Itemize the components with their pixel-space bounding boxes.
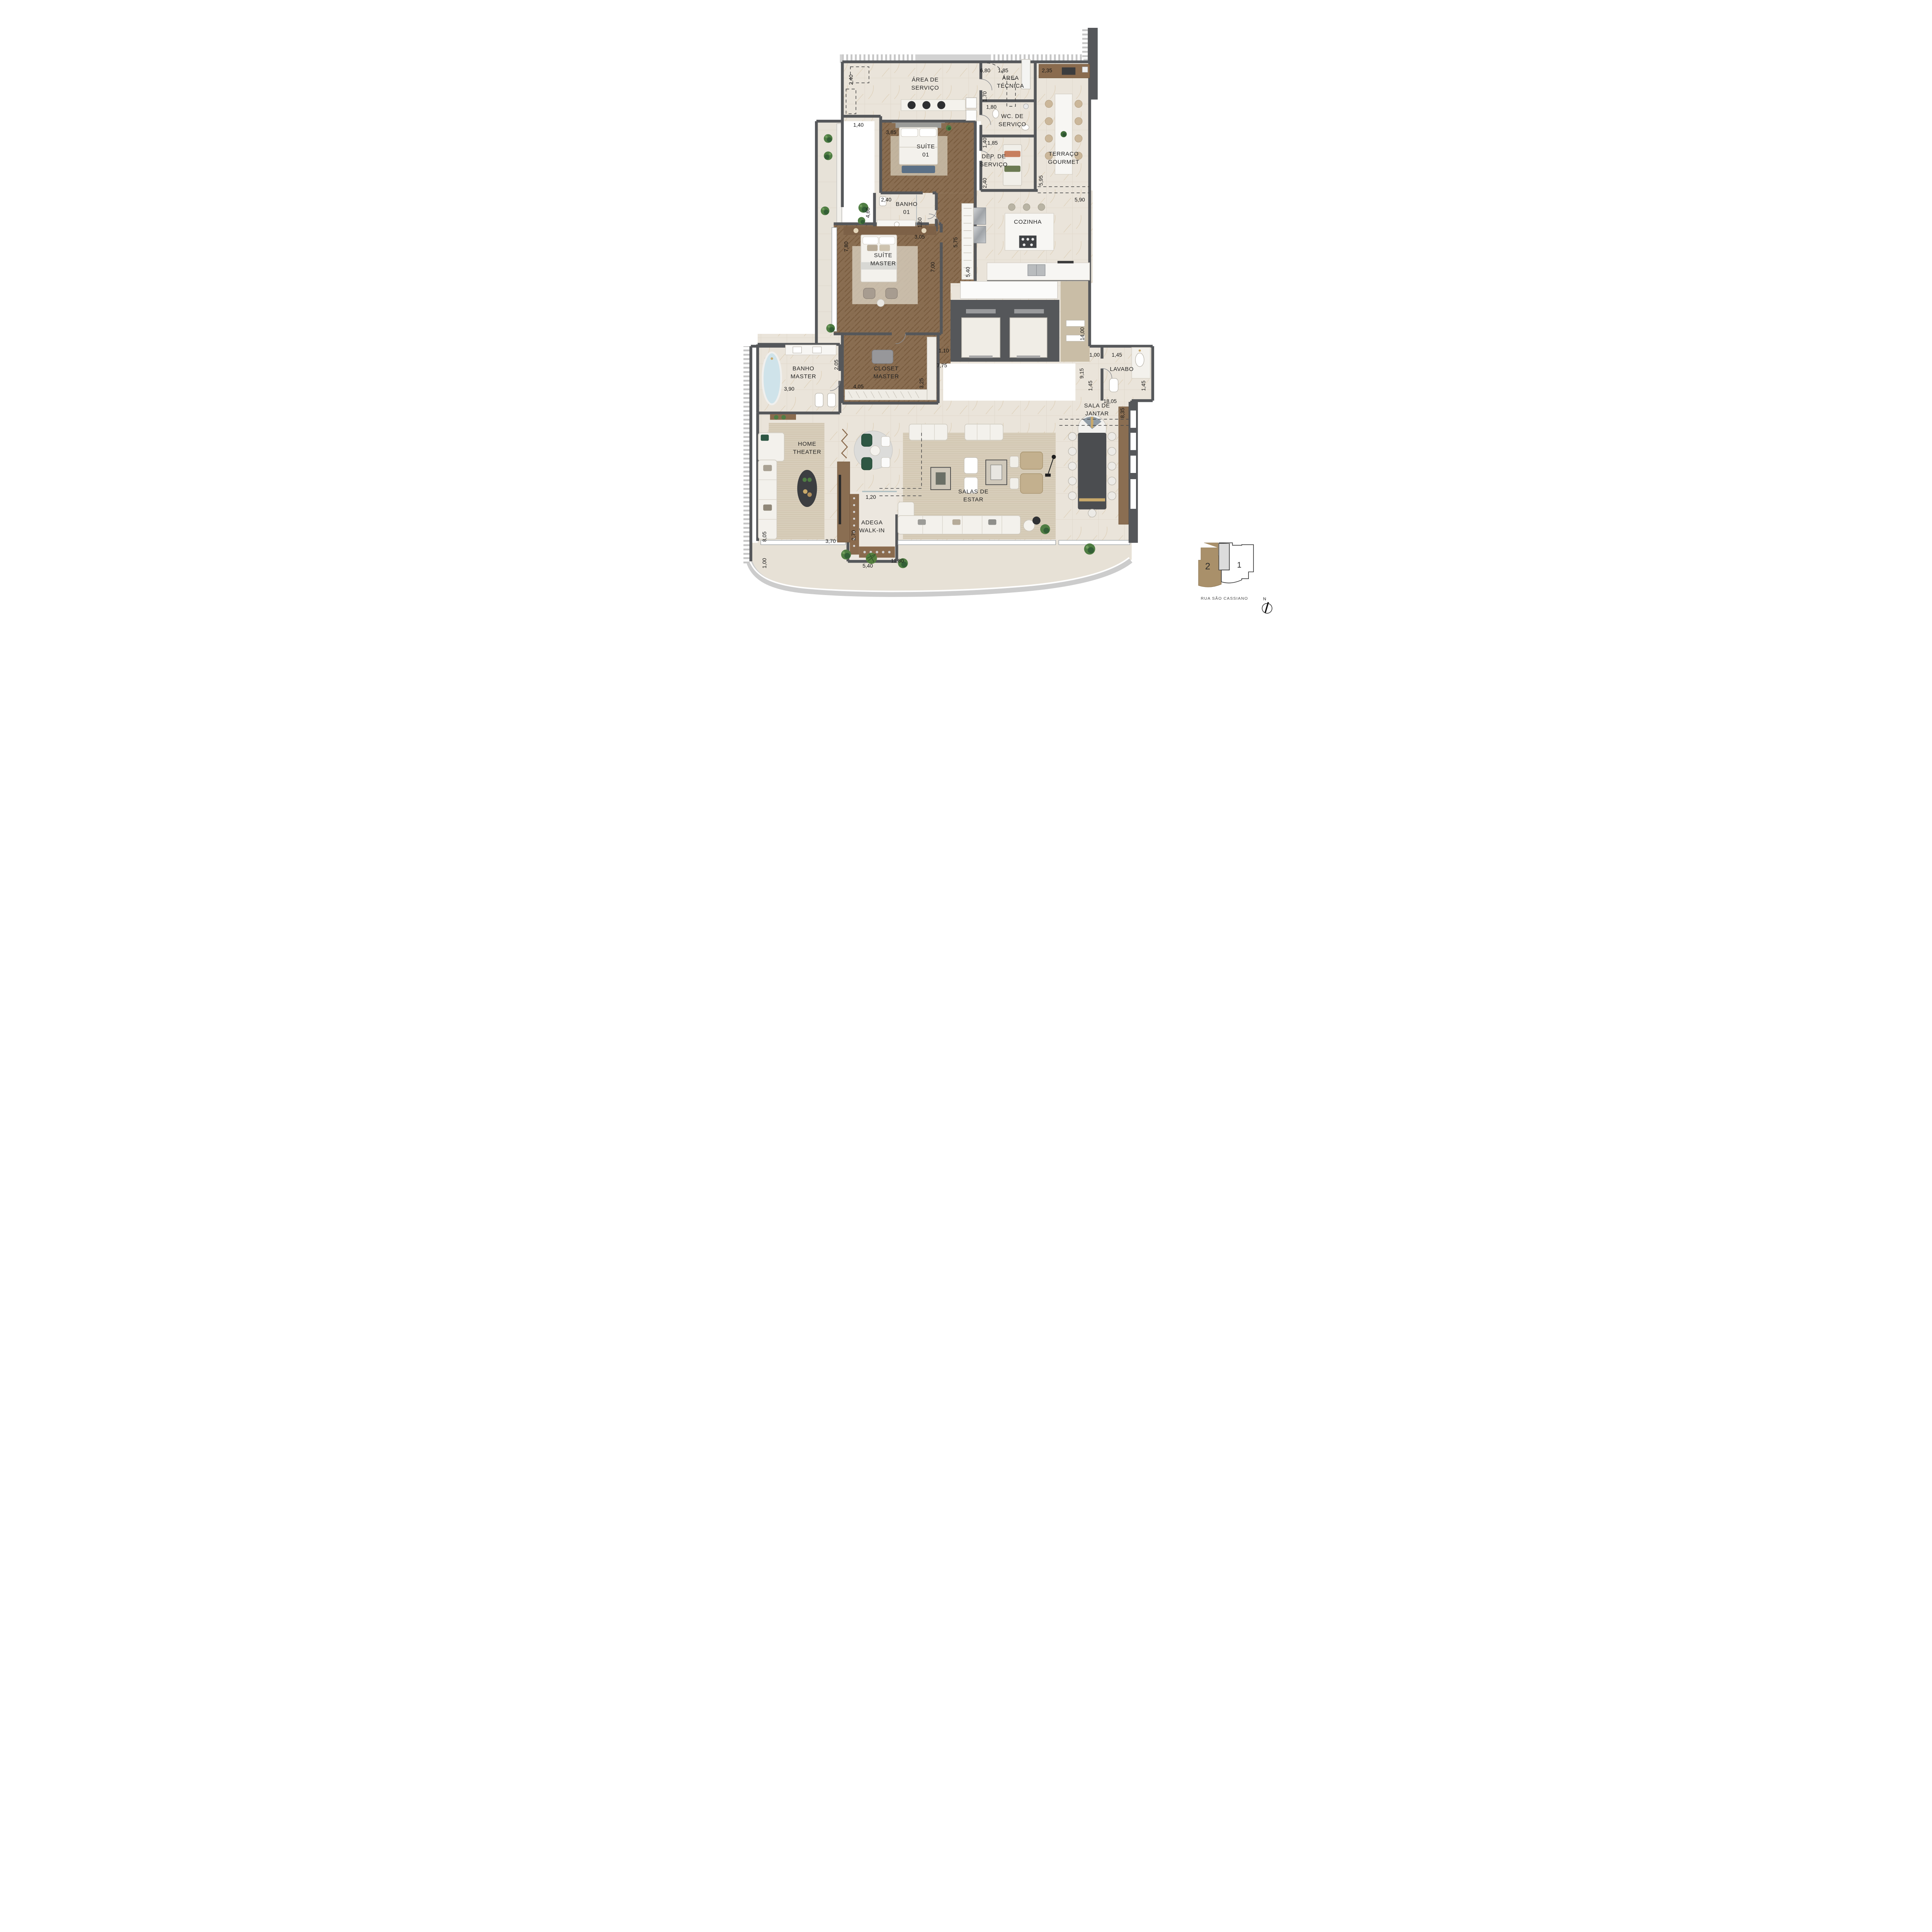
plant	[866, 553, 877, 564]
closet-shelf-right	[927, 337, 936, 400]
dim-cozinha-540: 5,40	[965, 267, 971, 277]
ht-pillow-green	[761, 435, 769, 441]
dim-bm-390: 3,90	[784, 386, 794, 392]
dim-suite01-385: 3,85	[886, 129, 896, 135]
sofa-pillow	[988, 519, 997, 525]
gourmet-sink	[1082, 67, 1088, 72]
keyplan-street-label: RUA SÃO CASSIANO	[1201, 596, 1248, 601]
dryer-icon	[966, 110, 976, 121]
jantar-window	[1131, 479, 1136, 509]
dim-wc-140: 1,40	[982, 138, 988, 148]
jantar-bar-gold	[1091, 417, 1093, 428]
dim-top-235: 2,35	[1042, 68, 1052, 73]
dim-servico-w: 2,40	[848, 75, 854, 85]
estar-side-table-dark	[1032, 517, 1041, 525]
master-pillow-accent	[867, 245, 878, 251]
dim-wc-180: 1,80	[986, 104, 997, 110]
estar-footstool	[1010, 456, 1019, 468]
estar-sofa-top-2	[965, 424, 1003, 440]
window-band-estar	[898, 540, 1056, 544]
ht-tv	[838, 475, 841, 524]
dim-bottom-540: 5,40	[862, 563, 873, 569]
dim-master-780: 7,80	[843, 241, 849, 252]
louver-band-column	[1082, 28, 1088, 59]
jantar-window	[1131, 456, 1136, 473]
dim-hall-145: 1,45	[1087, 381, 1093, 391]
dim-suite01-140: 1,40	[853, 122, 864, 128]
dim-jantar-1805: 18,05	[1104, 398, 1117, 404]
master-pillow	[879, 237, 895, 244]
bm-sink-2	[813, 347, 821, 353]
dim-lavabo-145: 1,45	[1112, 352, 1122, 358]
window-suite-master	[832, 228, 837, 332]
island-stools	[1009, 204, 1045, 211]
elevator-door-2	[1017, 355, 1040, 358]
plant	[1084, 543, 1095, 554]
dim-banho01-240: 2,40	[881, 197, 891, 203]
bm-sink-1	[793, 347, 801, 353]
suite01-nightstand	[889, 123, 896, 128]
dim-bm-205: 2,05	[833, 359, 839, 370]
lavabo-faucet-gold	[1139, 349, 1141, 352]
dim-master-700: 7,00	[930, 262, 935, 272]
closet-shelf-bottom	[845, 389, 927, 400]
plant	[841, 549, 851, 560]
plant	[1040, 524, 1050, 534]
plant	[821, 206, 829, 215]
dim-corr-110: 1,10	[939, 348, 949, 354]
plant	[946, 125, 951, 131]
elevator-cab-1	[962, 318, 1000, 357]
green-armchair	[862, 434, 872, 446]
dim-closet-325: 3,25	[919, 378, 925, 388]
dim-terraco-590: 5,90	[1075, 197, 1085, 203]
elevator-lintel	[966, 309, 996, 313]
label-lavabo: LAVABO	[1110, 366, 1134, 372]
dining-table-gold-band	[1079, 498, 1105, 502]
floor-lamp-base	[1045, 474, 1051, 477]
dim-terraco-595: 5,95	[1038, 175, 1044, 185]
service-door	[1066, 320, 1085, 327]
laundry-bowl	[908, 101, 916, 109]
keyplan-core	[1219, 543, 1229, 570]
dim-estar-1180: 11,80	[891, 558, 904, 564]
ht-table-decor-gold	[803, 489, 808, 494]
master-lamp	[854, 228, 859, 233]
dim-ht-100: 1,00	[762, 558, 767, 568]
plant	[1061, 131, 1067, 137]
ht-coffee-table	[797, 470, 817, 507]
dim-top-680: 6,80	[980, 68, 990, 73]
dim-lavabo-145b: 1,45	[1141, 381, 1146, 391]
closet-ottoman	[872, 350, 893, 364]
bm-toilet	[815, 393, 823, 407]
ht-pillow	[763, 465, 772, 471]
master-pillow-accent	[879, 245, 890, 251]
wc-shower-icon	[1024, 104, 1029, 109]
plant	[858, 217, 865, 224]
lavabo-sink	[1135, 353, 1144, 367]
suite01-bench	[902, 166, 935, 173]
laundry-bowl	[937, 101, 946, 109]
banho01-sink	[894, 222, 899, 227]
elevator-lintel	[1014, 309, 1044, 313]
fridge-icon	[973, 208, 986, 224]
elevator-cab-2	[1010, 318, 1047, 357]
plant	[826, 324, 835, 332]
dim-dep-240: 2,40	[982, 178, 988, 188]
ht-table-plant	[803, 478, 807, 482]
master-lamp	[922, 228, 927, 233]
label-cozinha: COZINHA	[1014, 219, 1042, 225]
keyplan-unit1-number: 1	[1237, 561, 1242, 570]
washer-icon	[966, 98, 976, 108]
white-pouf	[881, 437, 890, 447]
wc-toilet	[993, 109, 999, 118]
dim-niche-460: 4,60	[865, 207, 871, 218]
dim-dep-185: 1,85	[987, 140, 998, 146]
floor-plan-svg: ÁREA DESERVIÇO ÁREATÉCNICA WC. DESERVIÇO…	[657, 0, 1275, 631]
dim-hall-100: 1,00	[1089, 352, 1100, 358]
dim-adega-270: 2,70	[851, 530, 857, 541]
plant	[824, 134, 832, 143]
estar-art-2	[991, 465, 1002, 480]
dim-closet-405: 4,05	[853, 384, 864, 389]
plant	[824, 151, 832, 160]
estar-art-1	[936, 472, 946, 485]
foyer-hall	[961, 281, 1058, 299]
ht-table-plant	[808, 478, 812, 482]
laundry-bowl	[922, 101, 930, 109]
dim-ht-370: 3,70	[825, 538, 836, 544]
estar-footstool	[1010, 478, 1019, 489]
dim-jantar-835: 8,35	[1120, 408, 1126, 418]
ht-pillow	[763, 505, 772, 511]
window-band-jantar	[1059, 540, 1130, 544]
freezer-icon	[973, 226, 986, 243]
dim-right-915: 9,15	[1079, 368, 1085, 379]
dim-adega-120: 1,20	[866, 494, 876, 500]
suite01-pillow	[920, 129, 936, 137]
green-armchair	[862, 457, 872, 470]
counter-tray	[1058, 261, 1074, 263]
dining-table	[1078, 433, 1107, 509]
lavabo-toilet	[1109, 378, 1118, 392]
sofa-pillow	[918, 519, 926, 525]
ht-table-decor-gold	[807, 492, 812, 497]
dim-banho01-160: 1,60	[917, 217, 923, 228]
dim-right-1400: 14,00	[1080, 327, 1085, 340]
dim-ht-805: 8,05	[762, 531, 767, 542]
estar-lounge-chair	[1020, 452, 1043, 469]
dim-wardrobe-575: 5,75	[953, 237, 959, 247]
bm-bidet	[828, 393, 836, 407]
estar-sofa-top-1	[909, 424, 947, 440]
cooktop	[1019, 236, 1037, 248]
dim-hall-305: 3,05	[915, 234, 925, 240]
grill-icon	[1062, 67, 1075, 75]
jantar-window	[1131, 433, 1136, 450]
dim-tecnica-170: 1,70	[982, 91, 988, 102]
dim-corr-775: 7,75	[937, 362, 947, 368]
compass-n-label: N	[1263, 597, 1266, 602]
bathtub	[763, 352, 781, 404]
jantar-window	[1131, 410, 1136, 428]
elevator-door-1	[969, 355, 993, 358]
master-pillow	[863, 237, 878, 244]
sofa-pillow	[952, 519, 961, 525]
side-table-round	[870, 446, 880, 456]
suite01-pillow	[901, 129, 918, 137]
jantar-sideboard	[1119, 407, 1129, 524]
floor-plan-page: ÁREA DESERVIÇO ÁREATÉCNICA WC. DESERVIÇO…	[657, 0, 1275, 631]
dim-top-185: 1,85	[998, 68, 1009, 73]
floor-lamp-head	[1052, 455, 1056, 459]
tub-faucet-gold	[770, 357, 773, 360]
white-pouf	[881, 457, 890, 468]
keyplan-unit2-number: 2	[1205, 561, 1210, 572]
estar-lounge-chair	[1020, 474, 1043, 493]
dep-pillow	[1004, 151, 1020, 157]
estar-ottoman	[964, 457, 978, 474]
